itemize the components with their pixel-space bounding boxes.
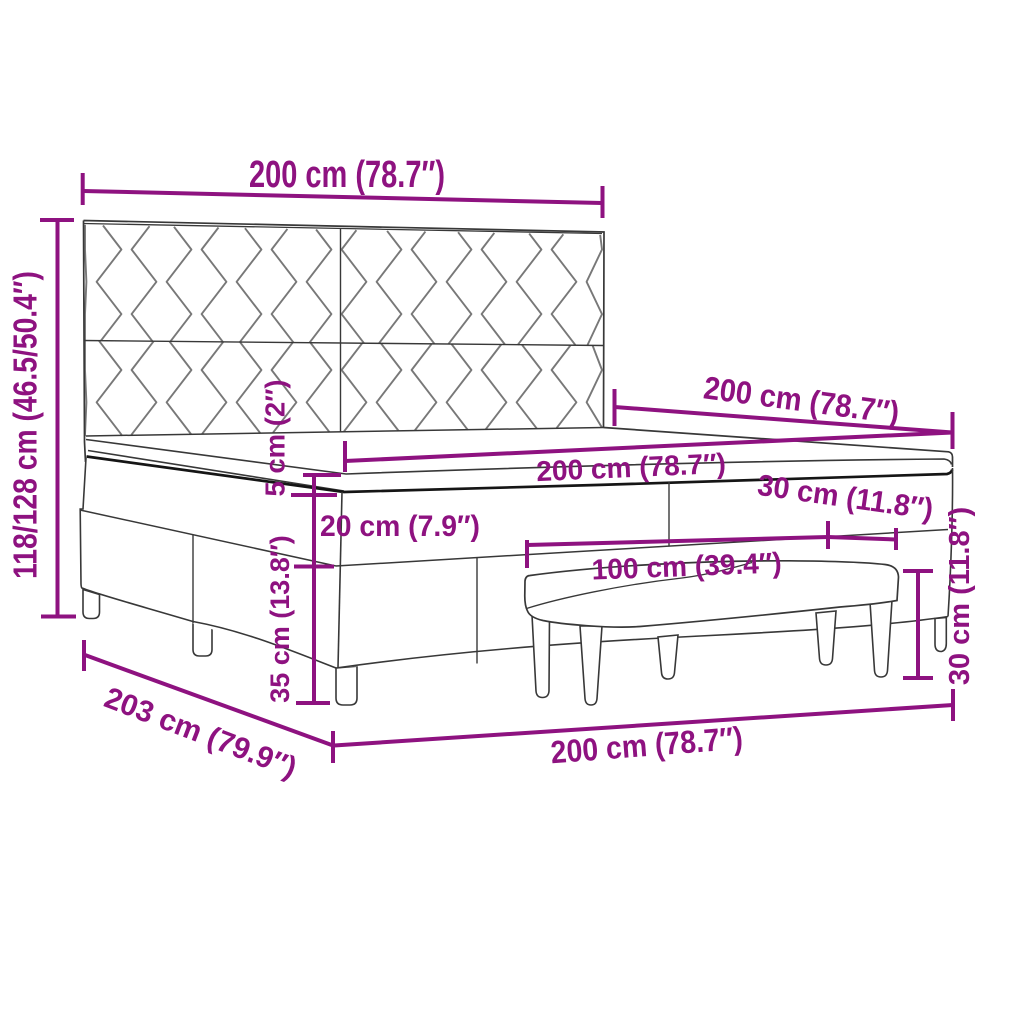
svg-text:20 cm (7.9″): 20 cm (7.9″) [320,511,480,543]
svg-text:35 cm (13.8″): 35 cm (13.8″) [265,535,295,703]
svg-text:5 cm (2″): 5 cm (2″) [260,379,291,496]
svg-text:118/128 cm (46.5/50.4″): 118/128 cm (46.5/50.4″) [6,271,44,579]
svg-text:30 cm (11.8″): 30 cm (11.8″) [944,507,976,685]
svg-text:200 cm (78.7″): 200 cm (78.7″) [249,153,445,196]
